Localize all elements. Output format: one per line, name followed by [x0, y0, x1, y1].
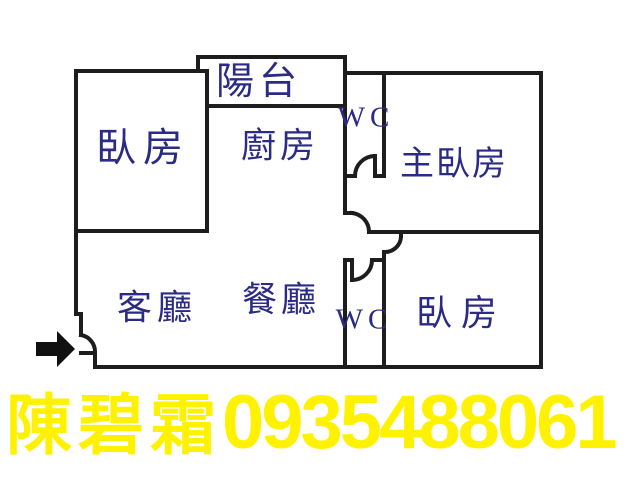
wall-left [76, 71, 81, 335]
contact-banner: 陳碧霜0935488061 [6, 383, 640, 478]
door-arc-entrance [81, 335, 95, 352]
room-label-bedroom-left: 臥房 [96, 128, 190, 168]
room-label-wc-upper: WC [338, 104, 395, 133]
agent-name: 陳碧霜 [6, 388, 222, 462]
door-arc-bedroom-right [385, 236, 401, 252]
room-label-bedroom-right: 臥房 [416, 295, 506, 331]
room-label-wc-lower: WC [336, 306, 393, 335]
room-label-balcony: 陽台 [216, 63, 302, 101]
room-label-dining-room: 餐廳 [242, 283, 320, 318]
room-label-kitchen: 廚房 [241, 129, 319, 164]
wall-entrance-jamb [81, 353, 95, 367]
door-arc-master-bedroom [352, 213, 369, 232]
room-label-living-room: 客廳 [117, 291, 197, 326]
phone-number: 0935488061 [222, 380, 615, 465]
door-arc-wc-lower [352, 260, 372, 280]
room-label-master-bedroom: 主臥房 [400, 148, 508, 182]
entrance-arrow-icon [36, 331, 75, 367]
floorplan-flyer: 陽台 臥房 廚房 WC 主臥房 客廳 餐廳 WC 臥房 陳碧霜093548806… [0, 0, 640, 478]
door-arc-wc-upper [355, 156, 375, 176]
